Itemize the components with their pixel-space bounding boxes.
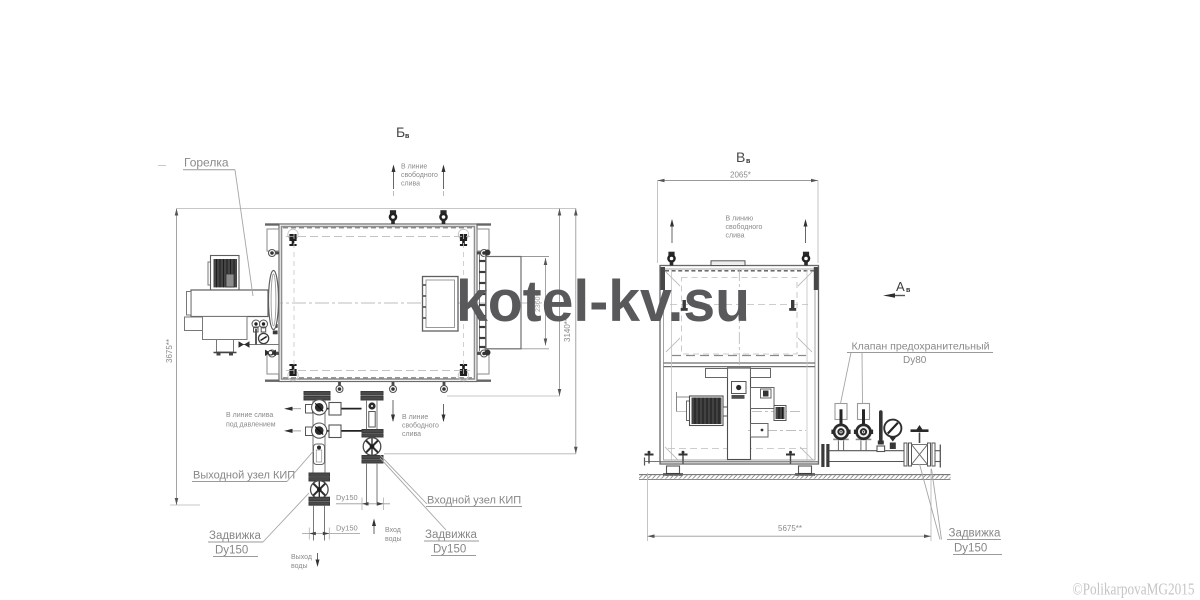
svg-text:Клапан предохранительный: Клапан предохранительный bbox=[852, 342, 990, 353]
svg-text:Dy150: Dy150 bbox=[215, 545, 248, 557]
svg-text:Вход: Вход bbox=[385, 527, 401, 534]
svg-text:слива: слива bbox=[402, 431, 421, 438]
svg-text:Б: Б bbox=[396, 124, 405, 140]
svg-text:Горелка: Горелка bbox=[184, 156, 229, 170]
svg-text:в: в bbox=[906, 287, 911, 294]
svg-text:воды: воды bbox=[291, 563, 308, 570]
svg-text:Dy150: Dy150 bbox=[433, 544, 466, 556]
svg-text:Задвижка: Задвижка bbox=[209, 530, 262, 542]
svg-text:Dy150: Dy150 bbox=[954, 543, 987, 555]
svg-text:В: В bbox=[736, 149, 745, 165]
svg-text:Dy80: Dy80 bbox=[903, 355, 927, 366]
svg-text:Выход: Выход bbox=[291, 554, 312, 561]
svg-text:Выходной узел КИП: Выходной узел КИП bbox=[193, 470, 295, 482]
svg-text:в: в bbox=[746, 158, 751, 165]
svg-text:©PolikarpovaMG2015: ©PolikarpovaMG2015 bbox=[1073, 580, 1195, 599]
svg-text:2065*: 2065* bbox=[730, 171, 751, 180]
svg-text:В линие слива: В линие слива bbox=[226, 412, 273, 419]
svg-text:слива: слива bbox=[726, 233, 745, 240]
svg-text:Задвижка: Задвижка bbox=[425, 529, 478, 541]
svg-text:Dy150: Dy150 bbox=[336, 493, 358, 502]
svg-text:слива: слива bbox=[401, 181, 420, 188]
svg-text:свободного: свободного bbox=[401, 171, 438, 179]
svg-text:Задвижка: Задвижка bbox=[949, 528, 1002, 540]
svg-text:3675**: 3675** bbox=[165, 339, 174, 363]
svg-text:Dy150: Dy150 bbox=[336, 524, 358, 533]
svg-text:свободного: свободного bbox=[726, 223, 763, 231]
svg-text:В линие: В линие bbox=[401, 164, 427, 171]
svg-text:В линие: В линие bbox=[402, 414, 428, 421]
svg-text:воды: воды bbox=[385, 536, 402, 543]
svg-text:в: в bbox=[405, 133, 410, 140]
svg-text:А: А bbox=[896, 279, 905, 294]
svg-text:под давлением: под давлением bbox=[226, 422, 276, 429]
svg-text:В линию: В линию bbox=[726, 216, 754, 223]
svg-text:5675**: 5675** bbox=[778, 524, 802, 533]
svg-text:свободного: свободного bbox=[402, 422, 439, 430]
svg-text:Входной узел КИП: Входной узел КИП bbox=[427, 495, 521, 507]
svg-text:kotel-kv.su: kotel-kv.su bbox=[456, 269, 750, 334]
